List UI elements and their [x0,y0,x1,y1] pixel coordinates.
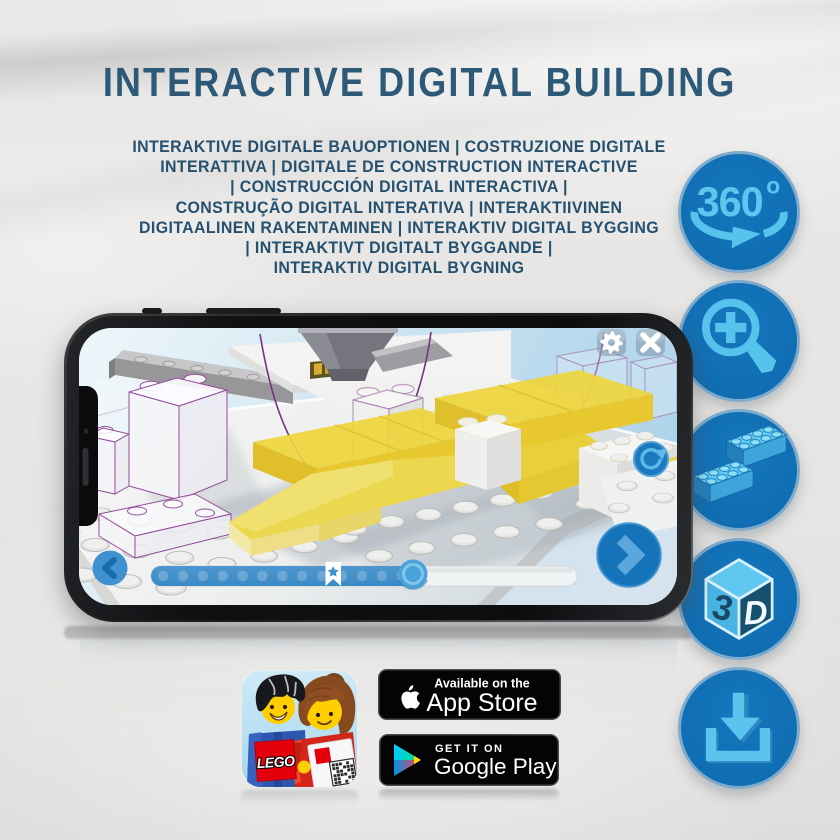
svg-text:D: D [742,594,768,633]
svg-text:LEGO: LEGO [256,753,295,772]
svg-text:360: 360 [697,179,763,225]
svg-text:App Store: App Store [426,689,537,717]
svg-text:o: o [766,172,780,198]
svg-text:Google Play: Google Play [434,754,557,779]
